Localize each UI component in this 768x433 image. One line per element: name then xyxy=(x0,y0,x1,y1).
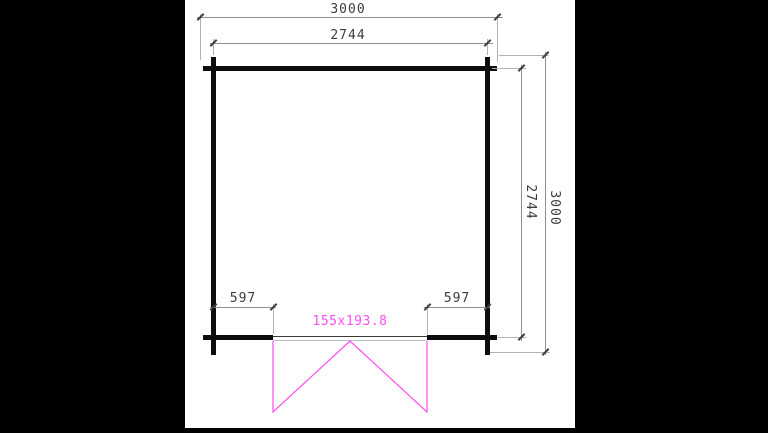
page-background: { "drawing": { "type": "floor-plan", "di… xyxy=(0,0,768,433)
door-swing xyxy=(185,0,575,428)
drawing-sheet: 3000 2744 2744 3000 597 597 155x193.8 xyxy=(185,0,575,428)
door-leaf-left xyxy=(273,341,350,412)
door-leaf-right xyxy=(350,341,427,412)
